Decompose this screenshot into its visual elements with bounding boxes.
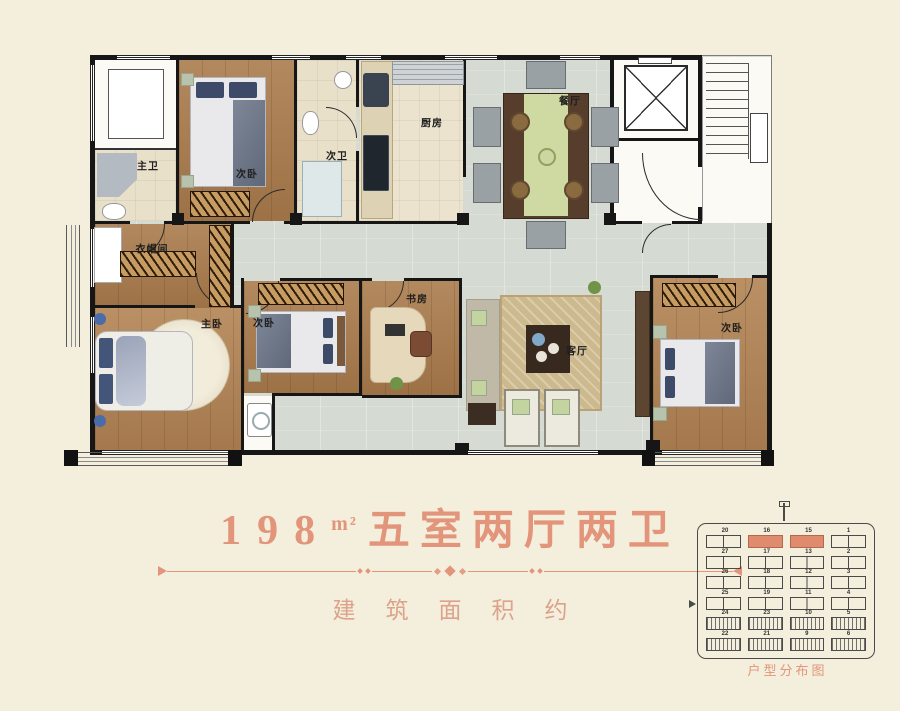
stair-steps — [706, 63, 748, 159]
wall-pillar — [172, 213, 184, 225]
minimap-building: 18 — [748, 573, 783, 591]
wall-pillar — [290, 213, 302, 225]
dressing-table — [94, 227, 122, 283]
stair-divider — [748, 63, 749, 159]
bed — [660, 339, 740, 407]
room-label-dining: 餐厅 — [559, 93, 581, 108]
minimap-building: 26 — [706, 573, 741, 591]
room-label-bedroom-top: 次卧 — [236, 166, 258, 181]
minimap-building: 27 — [706, 553, 741, 571]
wall — [771, 55, 772, 223]
bedside-pad — [181, 73, 194, 86]
side-table — [94, 313, 106, 325]
window — [272, 55, 310, 60]
title-block: 198m²五室两厅两卫 建筑面积约 — [150, 500, 750, 625]
floorplan: 主卫 次卧 次卫 厨房 餐厅 衣帽间 主卧 次卧 书房 客厅 次卧 — [90, 55, 772, 455]
dining-chair — [526, 221, 566, 249]
wall — [362, 395, 462, 398]
room-label-cloakroom: 衣帽间 — [136, 241, 169, 256]
side-entrance-icon — [689, 600, 696, 608]
wall — [404, 278, 462, 281]
building-grid: 2016151271713226181232519114242310522219… — [706, 532, 866, 652]
side-table — [94, 415, 106, 427]
fridge-shelf — [392, 61, 464, 85]
stair-rail — [750, 113, 768, 163]
lounge-chair — [504, 389, 540, 447]
desk-chair — [410, 331, 432, 357]
divider-diamond-icon — [434, 567, 441, 574]
minimap-building: 6 — [831, 635, 866, 653]
room-label-kitchen: 厨房 — [421, 115, 443, 130]
minimap-building: 11 — [790, 594, 825, 612]
subtitle: 建筑面积约 — [150, 591, 750, 625]
wall — [752, 275, 772, 278]
dining-table — [503, 93, 589, 219]
minimap-building: 20 — [706, 532, 741, 550]
plant — [390, 377, 403, 390]
wall — [272, 393, 275, 452]
stove — [363, 135, 389, 191]
window — [346, 55, 381, 60]
wall — [767, 223, 772, 455]
divider-arrow-icon — [158, 566, 167, 576]
wall — [459, 278, 462, 397]
window — [117, 55, 170, 60]
minimap-building: 25 — [706, 594, 741, 612]
minimap-building: 2 — [831, 553, 866, 571]
minimap-building: 4 — [831, 594, 866, 612]
kitchen-sink — [363, 73, 389, 107]
wall-pillar — [455, 443, 469, 455]
bay-window-strip — [642, 452, 774, 466]
wardrobe — [258, 283, 344, 305]
wall — [610, 138, 702, 141]
window — [445, 55, 497, 60]
wardrobe — [209, 225, 231, 307]
minimap-building: 17 — [748, 553, 783, 571]
wall — [90, 305, 195, 308]
site-boundary: 2016151271713226181232519114242310522219… — [697, 523, 875, 659]
page-title: 198m²五室两厅两卫 — [150, 500, 750, 555]
wall — [90, 221, 130, 224]
bedside-pad — [181, 175, 194, 188]
room-label-master-bedroom: 主卧 — [201, 316, 223, 331]
room-label-bedroom-right: 次卧 — [721, 320, 743, 335]
minimap-building: 12 — [790, 573, 825, 591]
room-label-master-bath: 主卫 — [137, 158, 159, 173]
divider-tick-icon — [357, 568, 363, 574]
minimap-building: 3 — [831, 573, 866, 591]
wall — [650, 275, 653, 452]
bedside-pad — [653, 325, 667, 339]
minimap-building: 21 — [748, 635, 783, 653]
dining-chair — [591, 163, 619, 203]
plant — [588, 281, 601, 294]
dining-chair — [591, 107, 619, 147]
bay-window-strip — [64, 452, 240, 466]
dining-chair — [526, 61, 566, 89]
sofa — [466, 299, 500, 411]
wall — [672, 221, 702, 224]
minimap-building: 16 — [748, 532, 783, 550]
shower-tray — [302, 161, 342, 217]
baywindow-frame — [108, 69, 164, 139]
window — [90, 65, 95, 141]
minimap-building: 9 — [790, 635, 825, 653]
window — [560, 55, 600, 60]
minimap-building: 10 — [790, 614, 825, 632]
bay-bracket — [761, 450, 774, 466]
bay-window-strip — [66, 225, 80, 347]
wall — [272, 393, 362, 396]
wall-pillar — [604, 213, 616, 225]
floorplan-poster: 主卫 次卧 次卫 厨房 餐厅 衣帽间 主卧 次卧 书房 客厅 次卧 198m²五… — [0, 0, 900, 711]
bay-bracket — [64, 450, 78, 466]
minimap-building: 22 — [706, 635, 741, 653]
wardrobe — [190, 191, 250, 217]
wall — [356, 55, 359, 107]
wall — [362, 278, 372, 281]
minimap-building: 15 — [790, 532, 825, 550]
wall — [294, 55, 297, 223]
area-unit: m² — [331, 513, 358, 535]
wall — [176, 55, 179, 223]
minimap-building: 23 — [748, 614, 783, 632]
room-label-second-bath: 次卫 — [326, 148, 348, 163]
wardrobe — [662, 283, 736, 307]
wall — [359, 278, 362, 395]
wall — [241, 278, 244, 452]
dining-chair — [473, 107, 501, 147]
wall — [231, 221, 234, 308]
bedside-pad — [653, 407, 667, 421]
washing-machine — [247, 403, 272, 437]
sink — [334, 71, 352, 89]
entrance-gate-icon — [779, 501, 789, 521]
wall — [284, 221, 466, 224]
minimap-caption: 户型分布图 — [695, 660, 880, 679]
toilet — [302, 111, 319, 135]
toilet — [102, 203, 126, 220]
room-label-living: 客厅 — [566, 343, 588, 358]
area-value: 198 — [220, 508, 331, 554]
room-label-bedroom-middle: 次卧 — [253, 315, 275, 330]
minimap-building: 24 — [706, 614, 741, 632]
bed — [95, 331, 193, 411]
wall — [356, 151, 359, 223]
tv-cabinet — [635, 291, 650, 417]
minimap-building: 19 — [748, 594, 783, 612]
layout-text: 五室两厅两卫 — [368, 508, 680, 554]
wall — [650, 275, 718, 278]
bedside-pad — [248, 369, 261, 382]
bay-bracket — [642, 450, 655, 466]
lounge-chair — [544, 389, 580, 447]
dining-chair — [473, 163, 501, 203]
room-label-study: 书房 — [406, 291, 428, 306]
wall-pillar — [457, 213, 469, 225]
side-table — [468, 403, 496, 425]
window — [468, 450, 598, 455]
wall — [280, 278, 362, 281]
title-divider — [158, 565, 742, 577]
elevator — [624, 65, 688, 131]
site-minimap: 2016151271713226181232519114242310522219… — [695, 501, 880, 679]
door-arc — [642, 224, 671, 253]
wall — [702, 55, 772, 56]
bay-bracket — [228, 450, 242, 466]
minimap-building: 5 — [831, 614, 866, 632]
minimap-building: 1 — [831, 532, 866, 550]
coffee-table — [526, 325, 570, 373]
elevator-vent — [638, 57, 672, 64]
minimap-building: 13 — [790, 553, 825, 571]
